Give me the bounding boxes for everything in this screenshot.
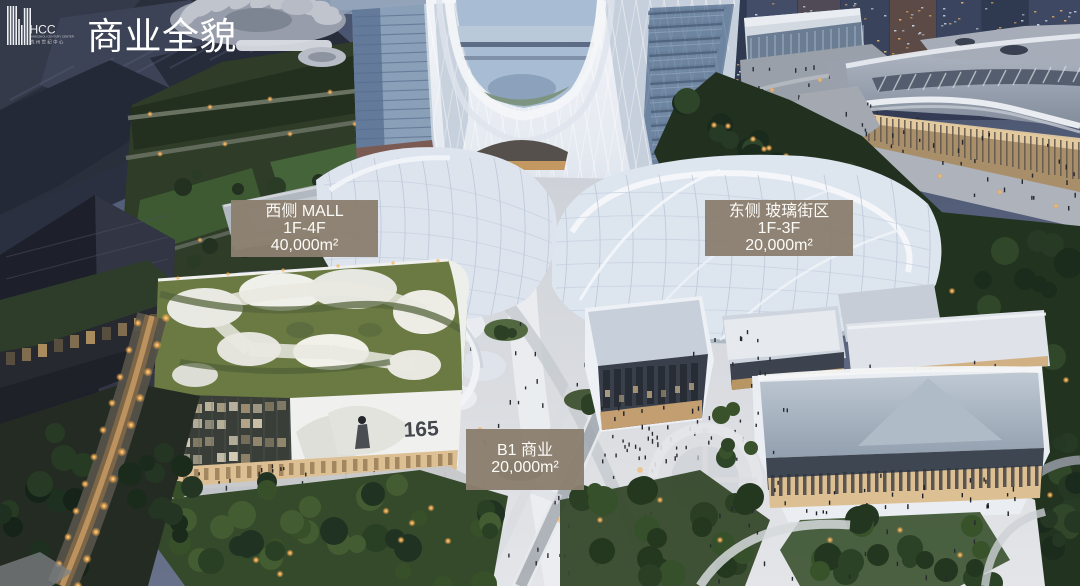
svg-text:杭州世纪中心: 杭州世纪中心 bbox=[30, 39, 65, 46]
svg-text:HANGZHOU CENTURY CENTER: HANGZHOU CENTURY CENTER bbox=[30, 35, 74, 39]
svg-text:165: 165 bbox=[403, 417, 440, 442]
